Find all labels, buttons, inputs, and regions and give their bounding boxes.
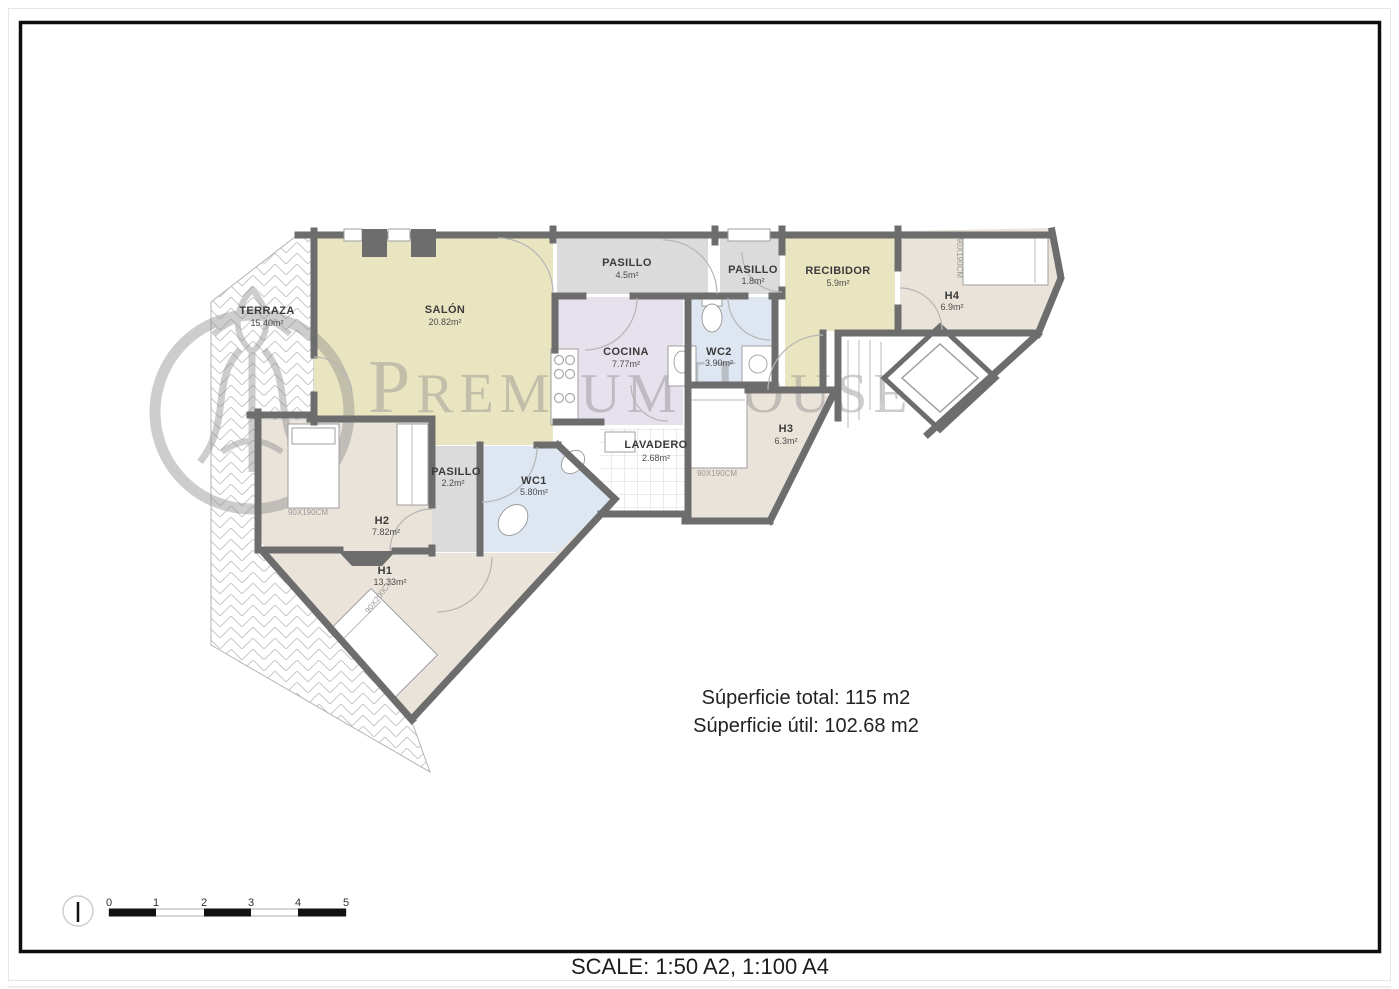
floorplan-page: PREMIUMHOUSES [0, 0, 1399, 989]
salon-window-2 [388, 229, 410, 241]
room-label-lavadero: LAVADERO [624, 439, 687, 451]
room-label-pasillo-top: PASILLO [602, 257, 652, 269]
h2-bed-pillow [292, 428, 335, 444]
room-label-wc1: WC1 [521, 475, 547, 487]
room-label-pasillo-small: PASILLO [728, 264, 778, 276]
h3-bed-size: 90X190CM [697, 469, 737, 478]
surface-total-text: Súperficie total: 115 m2 [702, 687, 911, 709]
scale-bar-seg-2 [204, 909, 251, 917]
surface-summary: Súperficie total: 115 m2 Súperficie útil… [693, 687, 919, 737]
scale-bar: 0 1 2 3 4 5 [63, 896, 349, 926]
room-area-h3: 6.3m² [774, 436, 797, 446]
room-label-recibidor: RECIBIDOR [805, 265, 870, 277]
scale-tick-4: 4 [295, 897, 301, 909]
room-area-recibidor: 5.9m² [826, 278, 849, 288]
room-area-terraza: 15.40m² [250, 318, 283, 328]
surface-util-text: Súperficie útil: 102.68 m2 [693, 715, 919, 737]
scale-tick-labels: 0 1 2 3 4 5 [106, 897, 349, 909]
room-area-pasillo-small: 1.8m² [741, 276, 764, 286]
pasillo-mid-floor [432, 446, 480, 552]
salon-pillar-2 [411, 229, 436, 257]
room-label-wc2: WC2 [706, 346, 732, 358]
room-area-pasillo-mid: 2.2m² [441, 478, 464, 488]
scale-bar-seg-1 [109, 909, 156, 917]
room-area-salon: 20.82m² [428, 317, 461, 327]
salon-window-1 [344, 229, 362, 241]
room-label-terraza: TERRAZA [239, 305, 294, 317]
scale-bar-seg-3 [298, 909, 346, 917]
room-label-cocina: COCINA [603, 346, 649, 358]
scale-tick-1: 1 [153, 897, 159, 909]
room-label-h1: H1 [378, 565, 393, 577]
scale-tick-5: 5 [343, 897, 349, 909]
h2-bed-size: 90X190CM [288, 508, 328, 517]
room-label-pasillo-mid: PASILLO [431, 466, 481, 478]
room-area-cocina: 7.77m² [612, 359, 640, 369]
room-area-lavadero: 2.68m² [642, 453, 670, 463]
room-label-salon: SALÓN [425, 303, 466, 316]
scale-tick-2: 2 [201, 897, 207, 909]
room-area-pasillo-top: 4.5m² [615, 270, 638, 280]
wc2-toilet-icon [702, 304, 722, 332]
footer-scale-text: SCALE: 1:50 A2, 1:100 A4 [571, 954, 829, 979]
scale-tick-3: 3 [248, 897, 254, 909]
h4-bed-size: 90X190CM [955, 238, 964, 278]
room-label-h4: H4 [945, 290, 960, 302]
room-label-h2: H2 [375, 515, 390, 527]
room-area-h4: 6.9m² [940, 302, 963, 312]
room-area-h2: 7.82m² [372, 527, 400, 537]
room-label-h3: H3 [779, 423, 794, 435]
room-area-wc2: 3.90m² [705, 358, 733, 368]
salon-pillar-1 [362, 229, 387, 257]
entry-door-opening [728, 229, 770, 241]
room-area-wc1: 5.80m² [520, 487, 548, 497]
scale-tick-0: 0 [106, 897, 112, 909]
kitchen-sink-counter [668, 346, 696, 386]
floorplan-drawing: PREMIUMHOUSES [0, 0, 1399, 989]
